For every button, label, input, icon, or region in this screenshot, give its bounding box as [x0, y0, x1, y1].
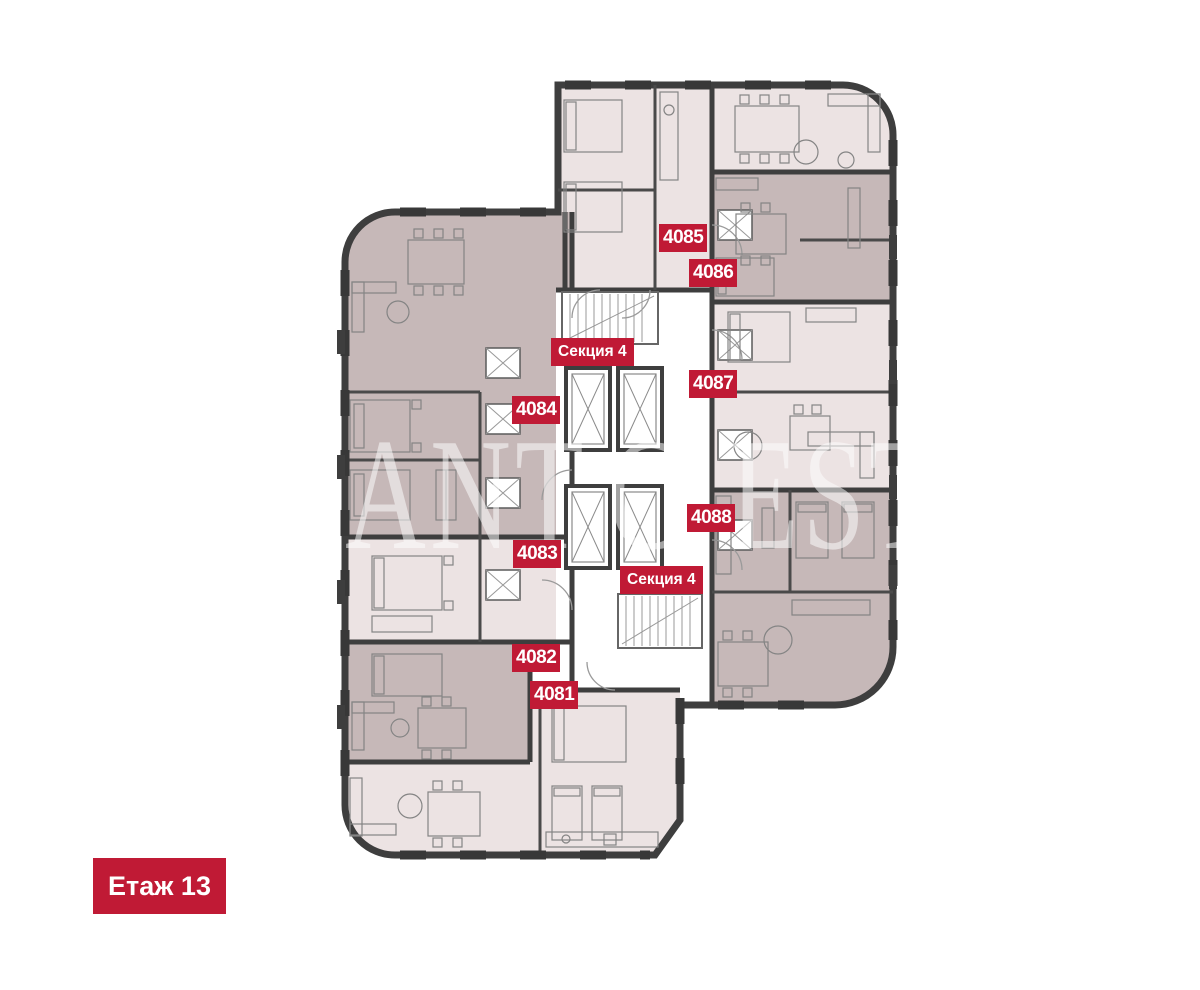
section-badge-bottom[interactable]: Секция 4 [620, 566, 703, 594]
apartment-badge-4081[interactable]: 4081 [530, 681, 578, 709]
elevator-shaft [566, 486, 610, 568]
floor-plan-canvas: ANT C EST 4085 4086 4087 4088 4084 4083 … [0, 0, 1200, 990]
floor-badge: Етаж 13 [93, 858, 226, 914]
apartment-badge-4082[interactable]: 4082 [512, 644, 560, 672]
section-badge-top[interactable]: Секция 4 [551, 338, 634, 366]
apartment-badge-4086[interactable]: 4086 [689, 259, 737, 287]
apartment-badge-4087[interactable]: 4087 [689, 370, 737, 398]
stairs-top [562, 292, 658, 344]
elevator-shaft [618, 486, 662, 568]
stairs-bottom [618, 594, 702, 648]
floor-plan [0, 0, 1200, 990]
apartment-4084-area[interactable] [345, 212, 572, 537]
apartment-badge-4083[interactable]: 4083 [513, 540, 561, 568]
apartment-badge-4088[interactable]: 4088 [687, 504, 735, 532]
apartment-areas [345, 85, 893, 855]
elevator-shaft [566, 368, 610, 450]
apartment-badge-4084[interactable]: 4084 [512, 396, 560, 424]
apartment-badge-4085[interactable]: 4085 [659, 224, 707, 252]
elevator-shaft [618, 368, 662, 450]
